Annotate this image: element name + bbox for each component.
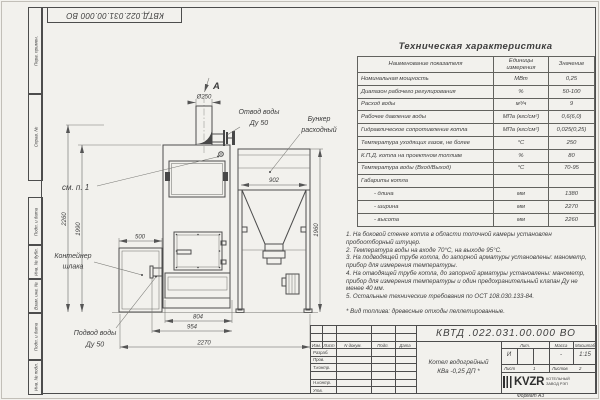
spec-row: К.П.Д. котла на проектном топливе%80 bbox=[358, 149, 595, 162]
view-label-a: А bbox=[212, 81, 220, 92]
tb-product-name-line1: Котел водогрейный bbox=[429, 358, 489, 367]
tb-role-tkontr: Т.контр. bbox=[313, 365, 330, 370]
spec-row: Диапазон рабочего регулирования%50-100 bbox=[358, 85, 595, 98]
title-block: Изм. Лист N докум. Подп. Дата Разраб. Пр… bbox=[310, 325, 597, 394]
kvzr-logo-text: KVZR bbox=[514, 376, 544, 388]
hopper-label-2: расходный bbox=[300, 126, 336, 134]
tb-role-utv: Утв. bbox=[313, 388, 323, 393]
tb-product-name: Котел водогрейный КВа -0,25 ДП * bbox=[416, 341, 501, 393]
spec-row: Гидравлическое сопротивление котлаМПа (к… bbox=[358, 124, 595, 137]
tb-role-prov: Пров. bbox=[313, 357, 324, 362]
tb-product-name-line2: КВа -0,25 ДП * bbox=[437, 367, 479, 376]
tb-designation: КВТД .022.031.00.000 ВО bbox=[416, 326, 596, 341]
slag-container-label-2: шлака bbox=[63, 264, 84, 271]
spec-header-value: Значение bbox=[549, 57, 595, 73]
note-4: 4. На отводящей трубе котла, до запорной… bbox=[346, 270, 595, 293]
tb-col-ndokum: N докум. bbox=[344, 343, 361, 348]
tb-role-nkontr: Н.контр. bbox=[313, 380, 331, 385]
dim-height-2260: 2260 bbox=[62, 212, 68, 227]
spec-row: Расход водым³/ч9 bbox=[358, 98, 595, 111]
fuel-hopper bbox=[236, 149, 312, 313]
spec-table: Наименование показателя Единицы измерени… bbox=[357, 56, 595, 227]
spec-row: - высотамм2260 bbox=[358, 213, 595, 226]
margin-box-podp-data-2: Подп. и дата bbox=[28, 312, 43, 361]
boiler-front-view: Ø250 А bbox=[42, 22, 347, 370]
dim-width-954: 954 bbox=[187, 325, 198, 331]
dim-width-2270: 2270 bbox=[196, 341, 211, 347]
tb-role-razrab: Разраб. bbox=[313, 350, 329, 355]
tb-col-data: Дата bbox=[399, 343, 410, 348]
slag-container-label-1: Контейнер bbox=[54, 252, 91, 260]
dimensions: 2260 1990 1960 500 902 804 954 2270 bbox=[62, 125, 323, 349]
technical-notes: 1. На боковой стенке котла в области топ… bbox=[346, 231, 595, 316]
designation-rotated-box: КВТД.022.031.00.000 ВО bbox=[47, 7, 182, 23]
water-outlet-label-1: Отвод воды bbox=[239, 108, 281, 116]
margin-box-inv-podl: Инв. № подл. bbox=[28, 359, 43, 395]
margin-box-podp-data-1: Подп. и дата bbox=[28, 197, 43, 246]
tb-col-podp: Подп. bbox=[377, 343, 388, 348]
kvzr-coil-icon bbox=[503, 376, 512, 388]
tb-sheets-value: 2 bbox=[579, 366, 581, 371]
format-note: Формат А3 bbox=[493, 393, 568, 399]
designation-rotated-text: КВТД.022.031.00.000 ВО bbox=[66, 11, 164, 20]
spec-header-row: Наименование показателя Единицы измерени… bbox=[358, 57, 595, 73]
note-3: 3. На подводящей трубе котла, до запорно… bbox=[346, 254, 595, 270]
margin-box-sprav-n: Справ. № bbox=[28, 93, 43, 181]
slag-container bbox=[119, 248, 162, 312]
water-inlet-label-2: Ду 50 bbox=[85, 342, 104, 349]
manufacturer-logo: KVZR КОТЕЛЬНЫЙ ЗАВОД РЭП bbox=[503, 373, 595, 391]
tb-col-list: Лист bbox=[323, 343, 334, 348]
spec-row: Габариты котла bbox=[358, 175, 595, 188]
spec-row: - длинамм1380 bbox=[358, 188, 595, 201]
tb-scale-value: 1:15 bbox=[579, 352, 591, 358]
note-1: 1. На боковой стенке котла в области топ… bbox=[346, 231, 595, 247]
tb-mass-value: - bbox=[560, 352, 562, 358]
margin-box-vzam-inv: Взам. инв. № bbox=[28, 278, 43, 314]
spec-row: Номинальная мощностьМВт0,25 bbox=[358, 73, 595, 86]
spec-table-title: Техническая характеристика bbox=[357, 41, 594, 52]
spec-header-unit: Единицы измерения bbox=[494, 57, 549, 73]
spec-row: Рабочее давление водыМПа (кгс/см²)0,6(6,… bbox=[358, 111, 595, 124]
dim-width-804: 804 bbox=[193, 315, 204, 321]
dim-height-1960: 1960 bbox=[314, 223, 320, 237]
tb-sheet-label: Лист bbox=[504, 366, 515, 371]
dim-width-500: 500 bbox=[135, 235, 146, 241]
fuel-type-note: * Вид топлива: древесные отходы пеллетир… bbox=[346, 308, 595, 316]
tb-scale-label: Масштаб bbox=[575, 343, 595, 348]
tb-sheet-value: 1 bbox=[533, 366, 535, 371]
margin-box-inv-dubl: Инв. № дубл. bbox=[28, 244, 43, 280]
spec-row: Температура уходящих газов, не более°С25… bbox=[358, 136, 595, 149]
tb-sheets-label: Листов bbox=[552, 366, 568, 371]
margin-box-perv-primen: Перв. примен. bbox=[28, 7, 43, 95]
dim-width-902: 902 bbox=[269, 178, 280, 184]
note-2: 2. Температура воды на входе 70°С, на вы… bbox=[346, 247, 595, 255]
dim-diameter-250: Ø250 bbox=[196, 95, 212, 101]
dim-height-1990: 1990 bbox=[76, 222, 82, 236]
drawing-sheet: КВТД.022.031.00.000 ВО Перв. примен. Спр… bbox=[0, 0, 600, 400]
tb-col-izm: Изм. bbox=[312, 343, 321, 348]
hopper-label-1: Бункер bbox=[308, 116, 331, 123]
kvzr-logo-caption: КОТЕЛЬНЫЙ ЗАВОД РЭП bbox=[546, 377, 570, 386]
tb-mass-label: Масса bbox=[555, 343, 568, 348]
spec-row: Температура воды (Вход/Выход)°С70-95 bbox=[358, 162, 595, 175]
see-note-label: см. п. 1 bbox=[62, 183, 89, 192]
tb-lit-value: И bbox=[507, 352, 511, 358]
note-5: 5. Остальные технические требования по О… bbox=[346, 293, 595, 301]
water-outlet-label-2: Ду 50 bbox=[249, 120, 268, 127]
spec-row: - ширинамм2270 bbox=[358, 200, 595, 213]
tb-lit-label: Лит. bbox=[520, 343, 530, 348]
water-inlet-label-1: Подвод воды bbox=[74, 329, 117, 337]
spec-header-name: Наименование показателя bbox=[358, 57, 494, 73]
